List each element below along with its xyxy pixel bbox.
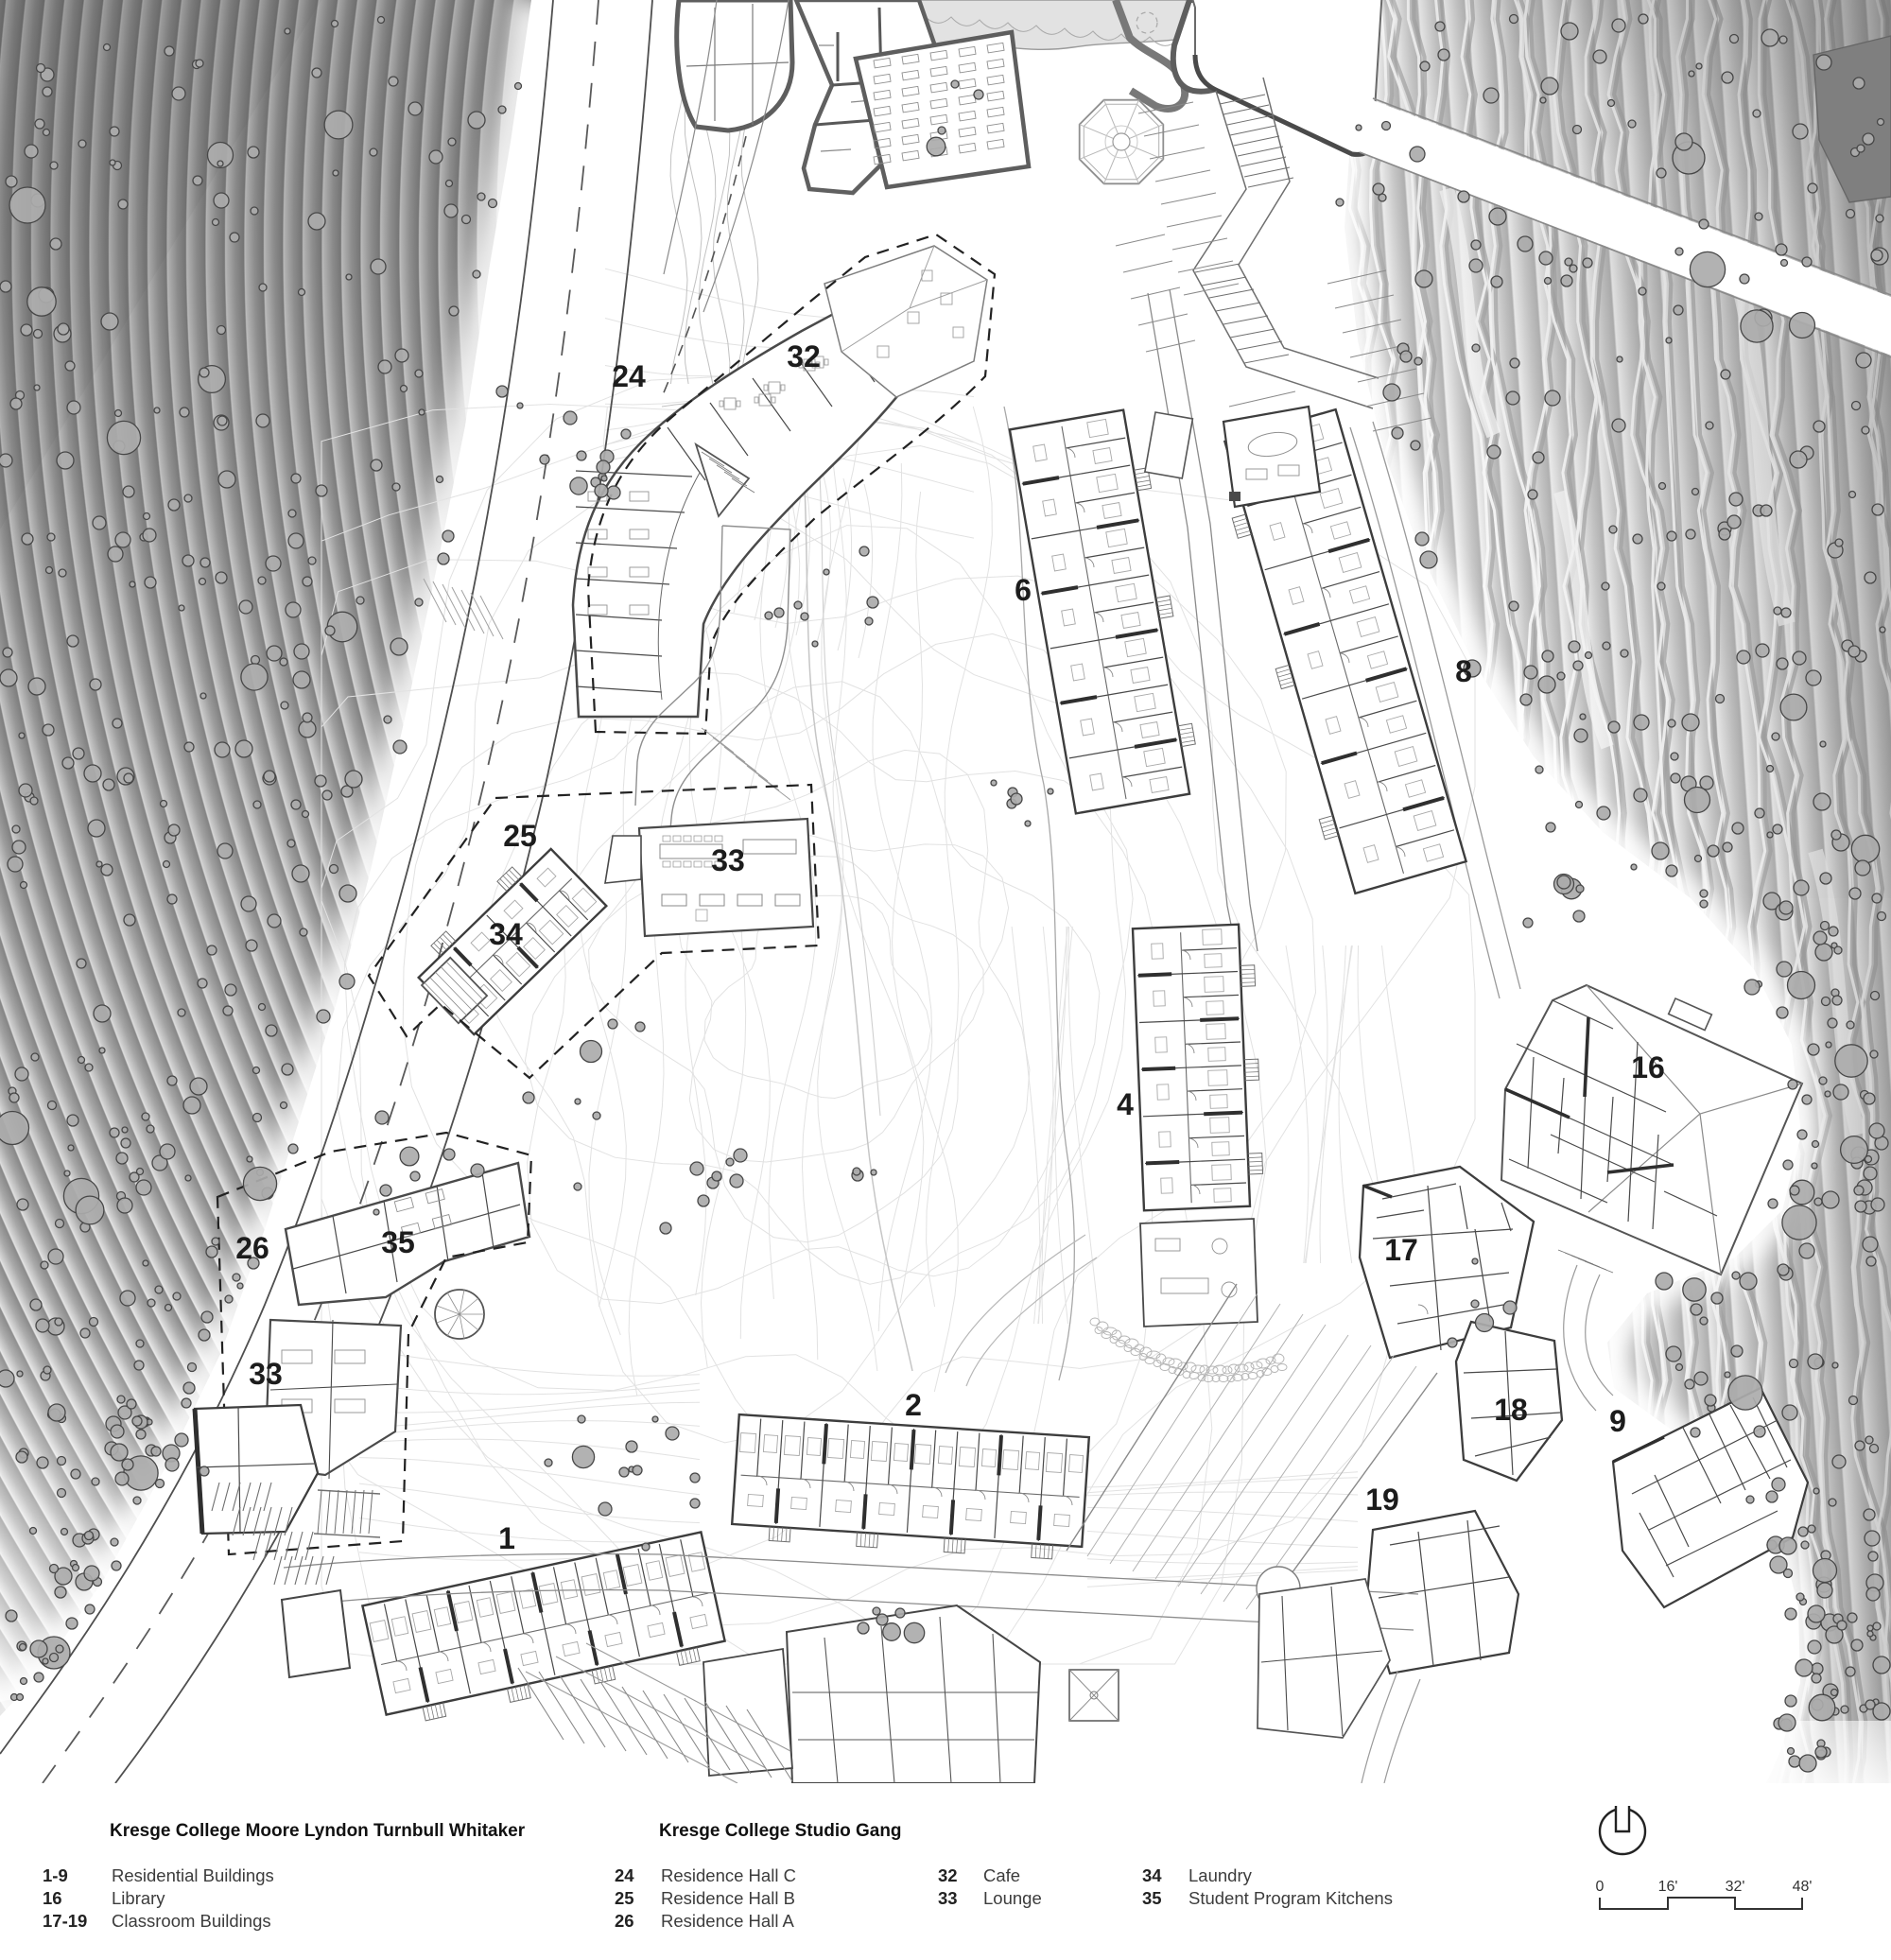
svg-text:9: 9: [1609, 1404, 1626, 1438]
svg-text:Library: Library: [112, 1888, 165, 1908]
svg-text:Laundry: Laundry: [1188, 1865, 1253, 1885]
svg-text:26: 26: [615, 1911, 634, 1931]
svg-text:18: 18: [1494, 1393, 1528, 1427]
svg-text:1: 1: [498, 1521, 515, 1555]
svg-text:35: 35: [1142, 1888, 1162, 1908]
svg-text:16: 16: [43, 1888, 62, 1908]
svg-text:Residence Hall C: Residence Hall C: [661, 1865, 796, 1885]
svg-text:4: 4: [1117, 1087, 1134, 1121]
svg-text:33: 33: [249, 1357, 283, 1391]
svg-text:1-9: 1-9: [43, 1865, 68, 1885]
svg-text:17-19: 17-19: [43, 1911, 87, 1931]
svg-text:Kresge College Studio Gang: Kresge College Studio Gang: [659, 1821, 902, 1841]
svg-text:48': 48': [1793, 1879, 1813, 1895]
svg-text:24: 24: [615, 1865, 634, 1885]
svg-text:32: 32: [787, 339, 821, 373]
svg-text:19: 19: [1365, 1483, 1399, 1517]
svg-text:33: 33: [711, 843, 745, 877]
svg-text:Residential Buildings: Residential Buildings: [112, 1865, 274, 1885]
svg-text:16: 16: [1631, 1050, 1665, 1084]
svg-text:Residence Hall A: Residence Hall A: [661, 1911, 795, 1931]
svg-text:26: 26: [235, 1231, 269, 1265]
svg-text:17: 17: [1384, 1233, 1418, 1267]
svg-text:33: 33: [938, 1888, 958, 1908]
svg-text:0: 0: [1596, 1879, 1605, 1895]
svg-text:Residence Hall B: Residence Hall B: [661, 1888, 795, 1908]
svg-text:2: 2: [905, 1388, 922, 1422]
svg-text:Cafe: Cafe: [983, 1865, 1020, 1885]
svg-text:Lounge: Lounge: [983, 1888, 1042, 1908]
svg-text:6: 6: [1015, 573, 1032, 607]
svg-text:35: 35: [381, 1225, 415, 1259]
svg-text:34: 34: [1142, 1865, 1162, 1885]
svg-text:32': 32': [1726, 1879, 1745, 1895]
svg-text:Student Program Kitchens: Student Program Kitchens: [1188, 1888, 1393, 1908]
svg-text:24: 24: [612, 359, 646, 393]
svg-text:34: 34: [489, 917, 523, 951]
svg-text:Classroom Buildings: Classroom Buildings: [112, 1911, 271, 1931]
svg-text:32: 32: [938, 1865, 958, 1885]
svg-text:Kresge College Moore Lyndon Tu: Kresge College Moore Lyndon Turnbull Whi…: [110, 1821, 526, 1841]
svg-text:25: 25: [503, 819, 537, 853]
svg-text:25: 25: [615, 1888, 634, 1908]
svg-text:8: 8: [1455, 654, 1472, 688]
svg-text:16': 16': [1658, 1879, 1678, 1895]
